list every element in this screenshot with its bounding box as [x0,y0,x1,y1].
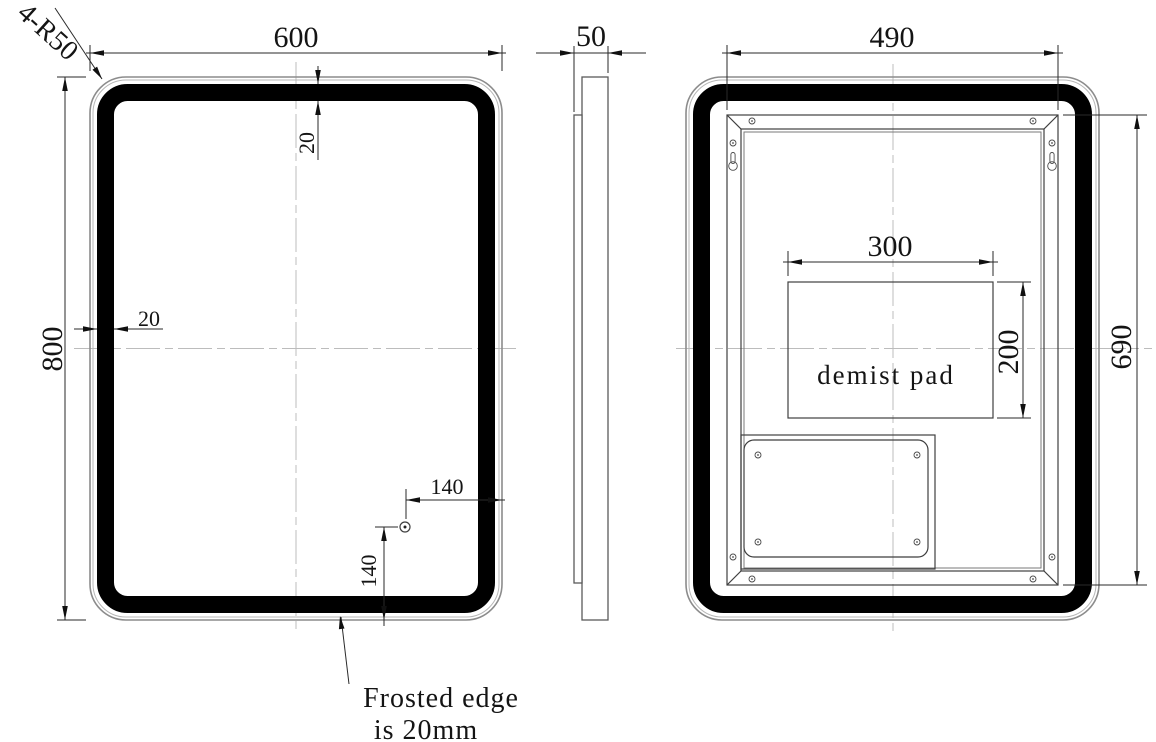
dim-arrow [62,606,68,620]
dim-arrow [979,259,993,265]
frosted-note-line2: is 20mm [374,715,478,742]
dim-arrow [406,497,420,503]
driver-box [741,435,935,569]
callout-frosted-edge: Frosted edge is 20mm [339,616,519,742]
dim-pad-height-200: 200 [992,282,1031,418]
side-view: 50 [536,20,646,620]
dim-arrow [381,527,387,541]
demist-pad [788,282,993,418]
dim-label-back-box-height: 690 [1105,325,1138,370]
dim-label-sensor-right: 140 [431,474,464,499]
dim-arrow [114,326,128,332]
demist-pad-label: demist pad [817,360,955,390]
callout-corner-radius: 4-R50 [11,0,102,79]
dim-label-back-box-width: 490 [870,21,915,54]
dim-label-frosted-top: 20 [294,132,319,154]
mirror-technical-drawing: 600 800 20 20 [0,0,1156,742]
dim-arrow [788,259,802,265]
dim-arrow [315,101,321,115]
technical-drawing-page: 600 800 20 20 [0,0,1156,742]
dim-arrow [1020,404,1026,418]
frosted-note-line1: Frosted edge [363,683,519,714]
dim-arrow [90,50,104,56]
dim-pad-width-300: 300 [783,230,998,276]
dim-arrow [1134,571,1140,585]
dim-label-depth: 50 [576,20,606,53]
bevel-corner [727,115,741,129]
keyhole-hanger-left [729,153,738,171]
dim-arrow [560,50,574,56]
driver-box-recess [741,435,935,569]
front-view: 600 800 20 20 [11,0,519,742]
bevel-corner [1044,115,1058,129]
dim-label-frosted-left: 20 [138,306,160,331]
dim-arrow [488,50,502,56]
dim-frosted-left-20: 20 [74,306,163,332]
dim-label-height: 800 [36,327,69,372]
keyhole-hanger-right [1048,153,1057,171]
dim-label-pad-width: 300 [868,230,913,263]
dim-arrow [1044,50,1058,56]
dim-arrow [727,50,741,56]
dim-label-sensor-bottom: 140 [356,555,381,588]
leader-arrow [93,67,103,79]
touch-sensor-dot [404,526,407,529]
dim-label-pad-height: 200 [992,330,1025,375]
bevel-corner [727,571,741,585]
side-profile-body [582,77,608,620]
side-profile-back-box [574,115,582,583]
dim-arrow [608,50,622,56]
leader-arrow [339,616,345,629]
driver-box-cover [744,440,928,557]
dim-arrow [1134,115,1140,129]
back-view: demist pad 490 690 [676,21,1152,632]
bevel-corner [1044,571,1058,585]
corner-radius-label: 4-R50 [11,0,84,67]
dim-label-width: 600 [274,21,319,54]
dim-arrow [62,77,68,91]
dim-arrow [1020,282,1026,296]
